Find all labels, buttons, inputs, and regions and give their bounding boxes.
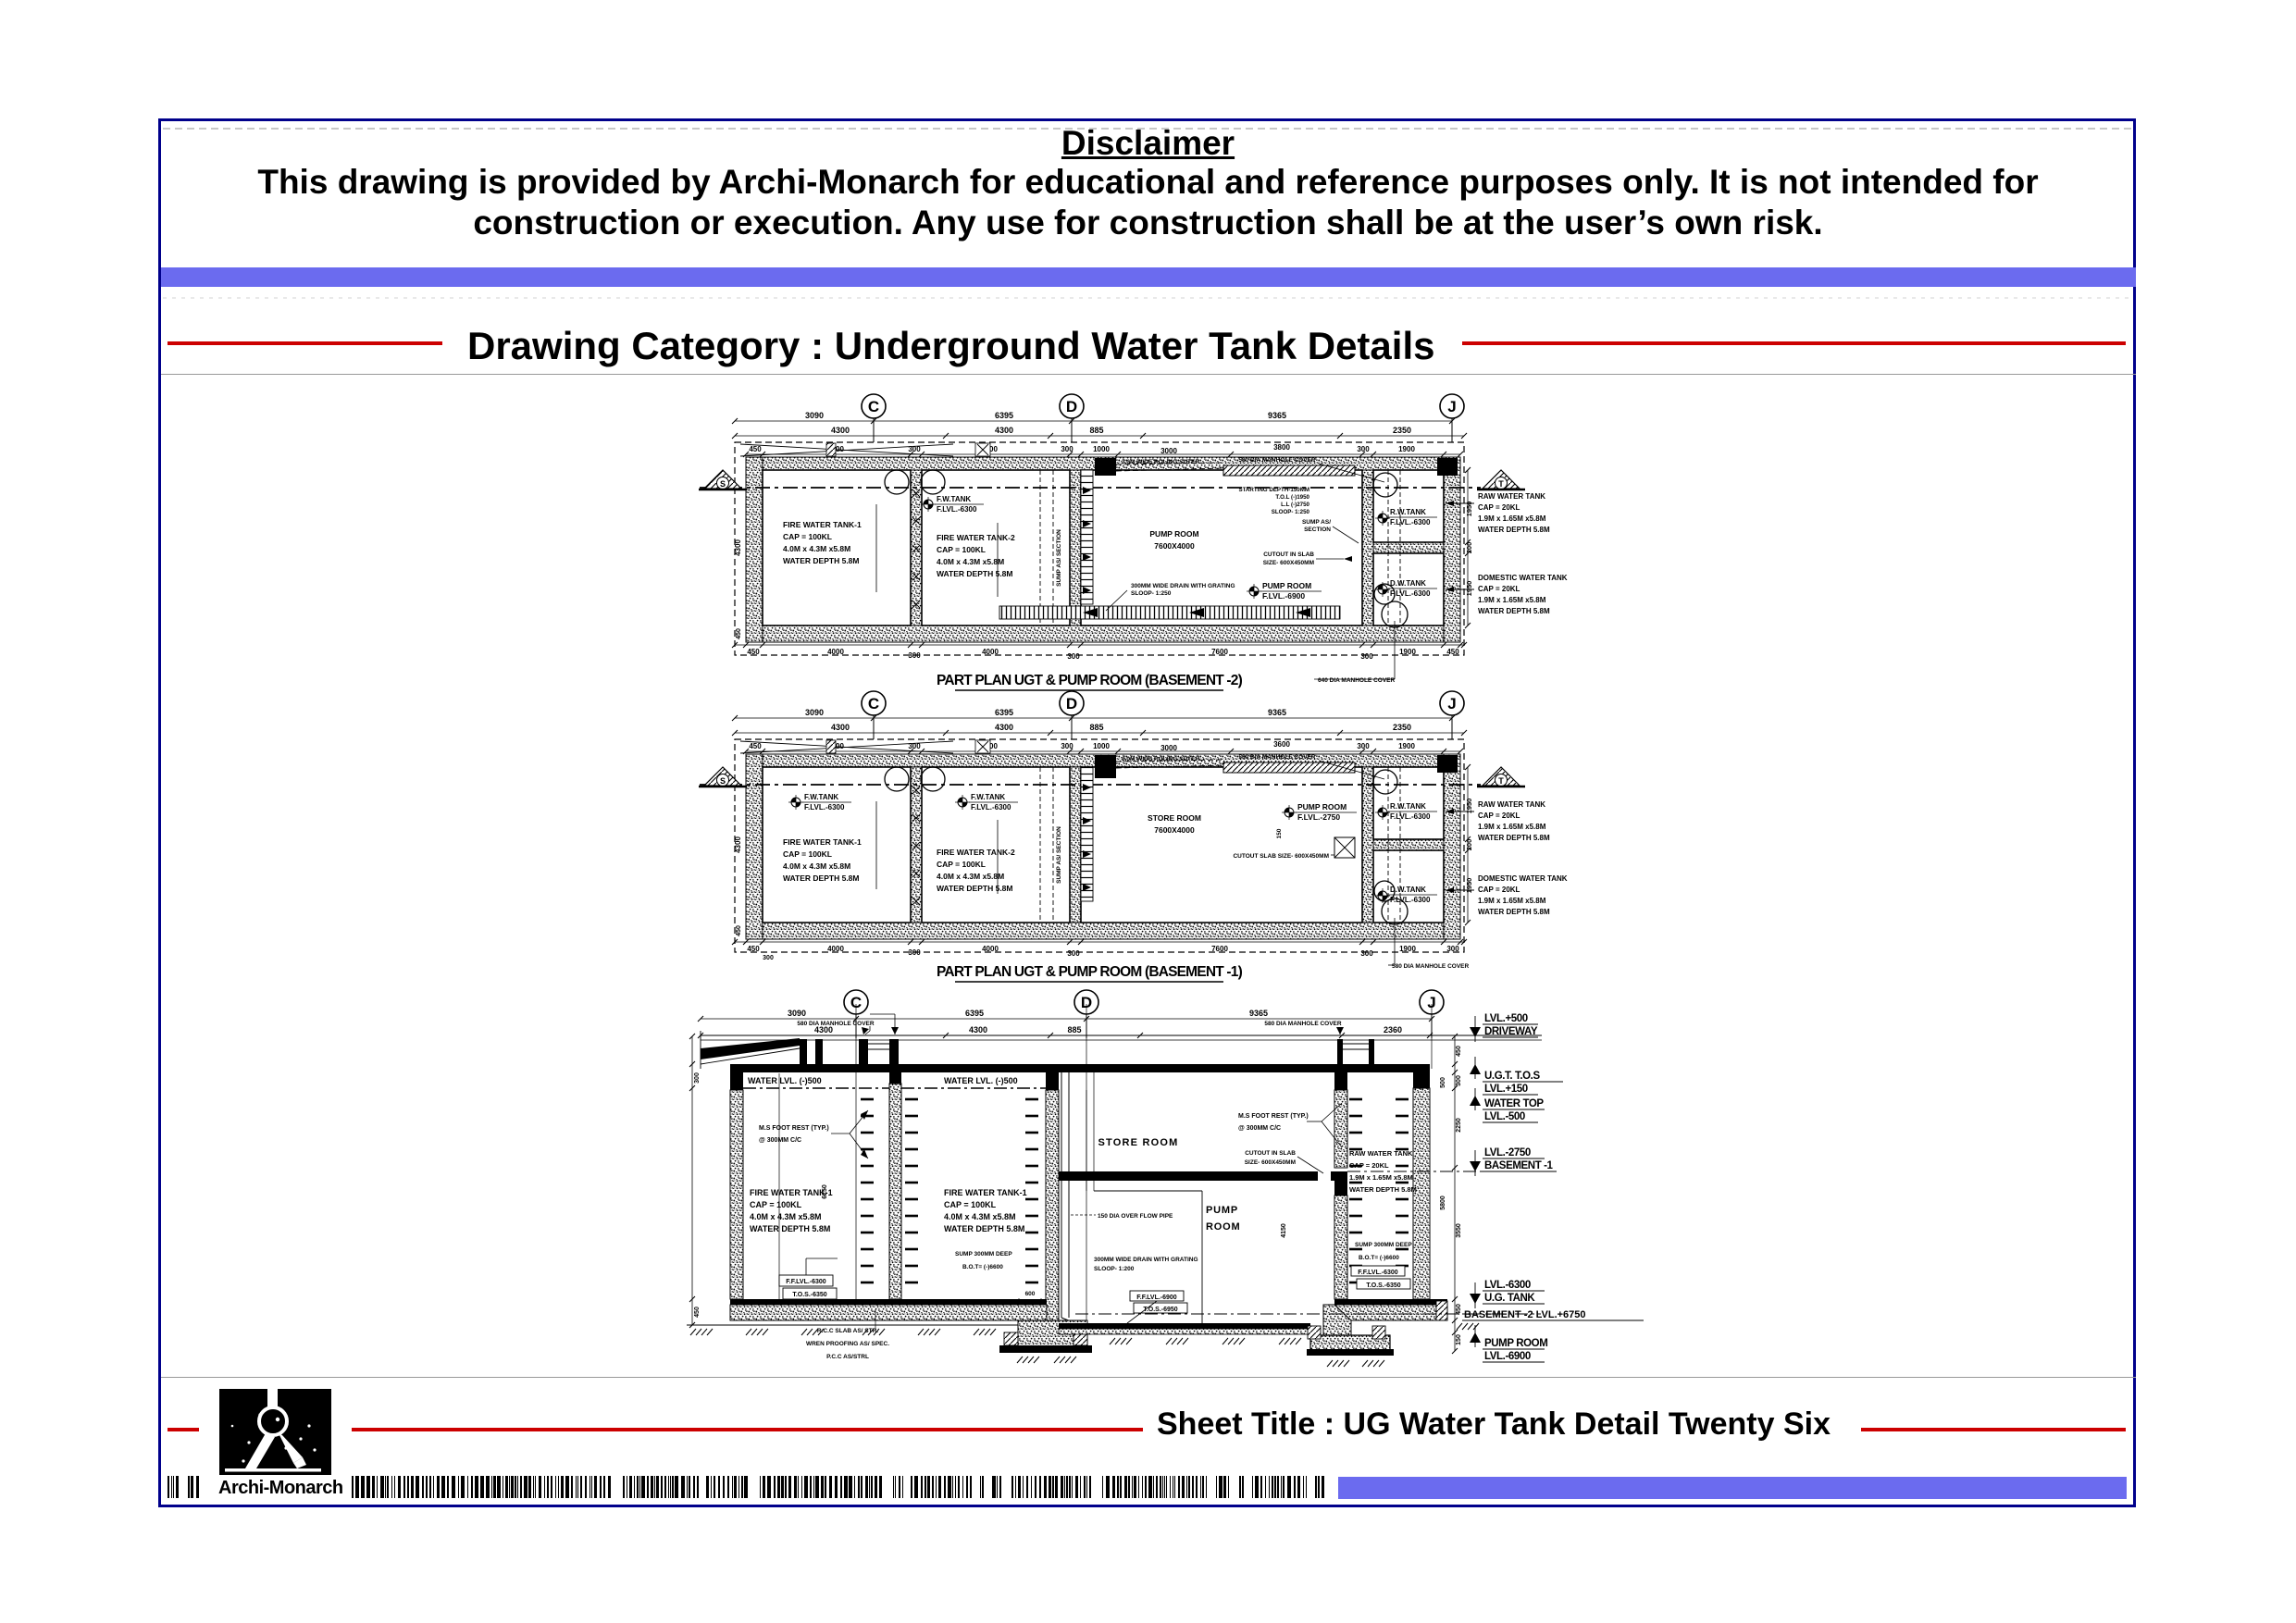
svg-text:T: T bbox=[1498, 479, 1504, 489]
svg-text:T.O.L (-)1950: T.O.L (-)1950 bbox=[1275, 494, 1309, 501]
svg-text:@ 300MM C/C: @ 300MM C/C bbox=[759, 1137, 801, 1144]
svg-text:L.L (-)2750: L.L (-)2750 bbox=[1281, 502, 1309, 508]
svg-text:D.W.TANK: D.W.TANK bbox=[1390, 579, 1426, 588]
svg-text:6395: 6395 bbox=[995, 708, 1013, 717]
svg-text:1.9M x 1.65M x5.8M: 1.9M x 1.65M x5.8M bbox=[1478, 514, 1546, 523]
svg-text:1950: 1950 bbox=[1465, 581, 1473, 597]
svg-text:1900: 1900 bbox=[1399, 945, 1416, 953]
svg-text:450: 450 bbox=[749, 445, 762, 453]
svg-text:CAP = 100KL: CAP = 100KL bbox=[937, 545, 986, 554]
svg-text:D: D bbox=[1066, 695, 1077, 712]
svg-text:1000: 1000 bbox=[1093, 742, 1110, 750]
svg-text:885: 885 bbox=[1067, 1025, 1081, 1035]
svg-text:4300: 4300 bbox=[734, 539, 742, 556]
svg-text:1.9M x 1.65M x5.8M: 1.9M x 1.65M x5.8M bbox=[1478, 596, 1546, 604]
svg-text:WATER DEPTH 5.8M: WATER DEPTH 5.8M bbox=[1478, 526, 1550, 534]
svg-text:F.LVL.-6300: F.LVL.-6300 bbox=[1390, 896, 1431, 904]
svg-text:600: 600 bbox=[1025, 1291, 1036, 1297]
svg-text:7600: 7600 bbox=[1211, 945, 1228, 953]
svg-text:4300: 4300 bbox=[831, 426, 850, 435]
svg-text:4300: 4300 bbox=[995, 426, 1013, 435]
svg-text:FIRE WATER TANK-2: FIRE WATER TANK-2 bbox=[937, 848, 1015, 857]
svg-text:PART PLAN UGT & PUMP ROOM (BA: PART PLAN UGT & PUMP ROOM (BASEMENT -2) bbox=[937, 673, 1243, 688]
svg-text:F.LVL.-6900: F.LVL.-6900 bbox=[1262, 591, 1305, 601]
svg-text:PART PLAN UGT & PUMP ROOM (BA: PART PLAN UGT & PUMP ROOM (BASEMENT -1) bbox=[937, 964, 1243, 980]
svg-text:450: 450 bbox=[1446, 648, 1459, 656]
svg-text:SUMP AS/ SECTION: SUMP AS/ SECTION bbox=[1056, 529, 1062, 587]
svg-text:SUMP AS/ SECTION: SUMP AS/ SECTION bbox=[1056, 826, 1062, 884]
svg-text:R.W.TANK: R.W.TANK bbox=[1390, 802, 1426, 811]
svg-text:4.0M x 4.3M x5.8M: 4.0M x 4.3M x5.8M bbox=[783, 544, 850, 553]
svg-text:580 DIA MANHOLE COVER: 580 DIA MANHOLE COVER bbox=[797, 1021, 874, 1027]
svg-text:450: 450 bbox=[1456, 1046, 1462, 1057]
svg-text:300: 300 bbox=[1360, 949, 1373, 958]
svg-text:U.G.T. T.O.S: U.G.T. T.O.S bbox=[1484, 1071, 1540, 1082]
svg-text:3.0M WIDE ROLING SUTER: 3.0M WIDE ROLING SUTER bbox=[1122, 459, 1199, 465]
svg-text:300: 300 bbox=[1067, 652, 1080, 661]
svg-text:300: 300 bbox=[1061, 742, 1074, 750]
svg-text:200: 200 bbox=[1465, 542, 1473, 554]
svg-text:4000: 4000 bbox=[827, 945, 844, 953]
svg-text:SLOOP- 1:250: SLOOP- 1:250 bbox=[1131, 590, 1172, 597]
svg-text:T: T bbox=[1498, 776, 1504, 786]
svg-text:F.F.LVL.-6300: F.F.LVL.-6300 bbox=[786, 1279, 826, 1285]
svg-text:300MM WIDE DRAIN WITH GRATING: 300MM WIDE DRAIN WITH GRATING bbox=[1131, 583, 1235, 589]
svg-text:PUMP ROOM: PUMP ROOM bbox=[1484, 1338, 1547, 1349]
svg-text:F.W.TANK: F.W.TANK bbox=[971, 793, 1005, 801]
svg-text:B.O.T= (-)6600: B.O.T= (-)6600 bbox=[962, 1264, 1003, 1270]
svg-text:580 DIA MANHOLE COVER: 580 DIA MANHOLE COVER bbox=[1238, 457, 1315, 464]
svg-text:WATER LVL. (-)500: WATER LVL. (-)500 bbox=[944, 1076, 1018, 1085]
svg-text:300: 300 bbox=[1357, 742, 1370, 750]
svg-text:WATER DEPTH 5.8M: WATER DEPTH 5.8M bbox=[944, 1224, 1024, 1233]
svg-text:SLOOP- 1:250: SLOOP- 1:250 bbox=[1272, 509, 1310, 515]
svg-text:F.LVL.-6300: F.LVL.-6300 bbox=[1390, 589, 1431, 598]
svg-text:F.W.TANK: F.W.TANK bbox=[804, 793, 838, 801]
svg-text:FIRE WATER TANK-1: FIRE WATER TANK-1 bbox=[783, 520, 862, 529]
svg-text:200: 200 bbox=[1465, 839, 1473, 851]
svg-text:U.G. TANK: U.G. TANK bbox=[1484, 1293, 1535, 1304]
svg-text:RAW WATER TANK: RAW WATER TANK bbox=[1349, 1149, 1413, 1158]
svg-text:1950: 1950 bbox=[1465, 799, 1473, 814]
svg-text:SUMP 300MM DEEP: SUMP 300MM DEEP bbox=[955, 1251, 1012, 1258]
svg-text:WATER DEPTH 5.8M: WATER DEPTH 5.8M bbox=[1349, 1185, 1417, 1194]
svg-text:885: 885 bbox=[1089, 426, 1103, 435]
svg-text:F.LVL.-6300: F.LVL.-6300 bbox=[937, 505, 977, 514]
svg-text:300: 300 bbox=[1456, 1075, 1462, 1086]
svg-text:3090: 3090 bbox=[788, 1009, 806, 1018]
svg-text:STORE ROOM: STORE ROOM bbox=[1148, 813, 1201, 823]
svg-text:CAP = 20KL: CAP = 20KL bbox=[1478, 811, 1520, 820]
svg-text:SIZE- 600X450MM: SIZE- 600X450MM bbox=[1245, 1159, 1296, 1166]
svg-text:CAP = 20KL: CAP = 20KL bbox=[1478, 503, 1520, 512]
svg-text:450: 450 bbox=[1456, 1304, 1462, 1315]
svg-text:WREN PROOFING AS/ SPEC.: WREN PROOFING AS/ SPEC. bbox=[806, 1341, 889, 1347]
svg-text:3090: 3090 bbox=[805, 708, 824, 717]
svg-text:450: 450 bbox=[747, 945, 760, 953]
svg-text:SECTION: SECTION bbox=[1304, 527, 1331, 533]
svg-text:SUMP AS/: SUMP AS/ bbox=[1302, 519, 1331, 526]
svg-text:CUTOUT IN SLAB: CUTOUT IN SLAB bbox=[1245, 1150, 1296, 1157]
svg-text:7600: 7600 bbox=[1211, 648, 1228, 656]
svg-text:4300: 4300 bbox=[969, 1025, 987, 1035]
svg-text:CAP = 100KL: CAP = 100KL bbox=[750, 1200, 802, 1209]
svg-text:300: 300 bbox=[694, 1072, 701, 1084]
svg-text:2350: 2350 bbox=[1393, 723, 1411, 732]
svg-text:4000: 4000 bbox=[982, 648, 999, 656]
svg-text:450: 450 bbox=[749, 742, 762, 750]
svg-text:9365: 9365 bbox=[1249, 1009, 1268, 1018]
svg-text:LVL.+150: LVL.+150 bbox=[1484, 1084, 1528, 1095]
svg-text:1950: 1950 bbox=[1465, 502, 1473, 517]
svg-text:FIRE WATER TANK-2: FIRE WATER TANK-2 bbox=[937, 533, 1015, 542]
svg-text:1900: 1900 bbox=[1399, 648, 1416, 656]
svg-text:CAP = 20KL: CAP = 20KL bbox=[1478, 585, 1520, 593]
svg-text:3800: 3800 bbox=[1273, 443, 1290, 452]
svg-text:F.F.LVL.-6300: F.F.LVL.-6300 bbox=[1358, 1270, 1398, 1276]
svg-text:F.W.TANK: F.W.TANK bbox=[937, 495, 971, 503]
svg-text:6395: 6395 bbox=[965, 1009, 984, 1018]
svg-text:4300: 4300 bbox=[831, 723, 850, 732]
svg-text:D: D bbox=[1066, 398, 1077, 415]
svg-text:300: 300 bbox=[1446, 945, 1459, 953]
svg-text:4.0M x 4.3M x5.8M: 4.0M x 4.3M x5.8M bbox=[937, 872, 1004, 881]
svg-text:300: 300 bbox=[1067, 949, 1080, 958]
svg-text:S: S bbox=[720, 479, 726, 489]
svg-text:C: C bbox=[868, 398, 879, 415]
svg-text:CAP = 100KL: CAP = 100KL bbox=[937, 860, 986, 869]
svg-text:300: 300 bbox=[908, 651, 921, 660]
svg-text:1950: 1950 bbox=[1465, 878, 1473, 894]
svg-text:150: 150 bbox=[1456, 1334, 1462, 1345]
svg-text:DRIVEWAY: DRIVEWAY bbox=[1484, 1026, 1538, 1037]
svg-text:J: J bbox=[1447, 398, 1456, 415]
svg-text:LVL.-6300: LVL.-6300 bbox=[1484, 1280, 1531, 1291]
svg-text:7600X4000: 7600X4000 bbox=[1154, 825, 1195, 835]
svg-text:3.0M WIDE ROLING SUTER: 3.0M WIDE ROLING SUTER bbox=[1122, 756, 1199, 762]
svg-text:DOMESTIC WATER TANK: DOMESTIC WATER TANK bbox=[1478, 574, 1568, 582]
svg-text:CAP = 100KL: CAP = 100KL bbox=[783, 532, 832, 541]
svg-text:F.LVL.-6300: F.LVL.-6300 bbox=[1390, 518, 1431, 527]
svg-text:WATER TOP: WATER TOP bbox=[1484, 1098, 1544, 1109]
svg-text:2350: 2350 bbox=[1393, 426, 1411, 435]
svg-text:STARTING DEPTH-150MM: STARTING DEPTH-150MM bbox=[1238, 487, 1309, 493]
svg-text:WATER DEPTH 5.8M: WATER DEPTH 5.8M bbox=[783, 873, 860, 883]
svg-text:T.O.S.-6350: T.O.S.-6350 bbox=[792, 1292, 826, 1298]
svg-text:CAP = 100KL: CAP = 100KL bbox=[944, 1200, 997, 1209]
svg-text:4000: 4000 bbox=[827, 648, 844, 656]
svg-text:450: 450 bbox=[694, 1307, 701, 1318]
svg-text:4.0M x 4.3M x5.8M: 4.0M x 4.3M x5.8M bbox=[783, 861, 850, 871]
svg-text:4300: 4300 bbox=[734, 836, 742, 853]
svg-text:WATER DEPTH 5.8M: WATER DEPTH 5.8M bbox=[1478, 607, 1550, 615]
svg-text:FIRE WATER TANK-1: FIRE WATER TANK-1 bbox=[783, 837, 862, 847]
svg-text:PUMP ROOM: PUMP ROOM bbox=[1297, 802, 1347, 811]
svg-text:CUTOUT SLAB SIZE- 600X450MM: CUTOUT SLAB SIZE- 600X450MM bbox=[1233, 853, 1329, 860]
svg-text:885: 885 bbox=[1089, 723, 1103, 732]
svg-text:SUMP 300MM DEEP: SUMP 300MM DEEP bbox=[1355, 1242, 1412, 1248]
svg-text:1.9M x 1.65M x5.8M: 1.9M x 1.65M x5.8M bbox=[1478, 897, 1546, 905]
svg-text:F.LVL.-2750: F.LVL.-2750 bbox=[1297, 812, 1340, 822]
svg-text:9365: 9365 bbox=[1268, 411, 1286, 420]
svg-text:300: 300 bbox=[763, 955, 774, 961]
svg-text:1.9M x 1.65M x5.8M: 1.9M x 1.65M x5.8M bbox=[1478, 823, 1546, 831]
svg-text:580 DIA MANHOLE COVER: 580 DIA MANHOLE COVER bbox=[1264, 1021, 1341, 1027]
svg-text:9365: 9365 bbox=[1268, 708, 1286, 717]
svg-text:1900: 1900 bbox=[1398, 445, 1415, 453]
svg-text:LVL.+500: LVL.+500 bbox=[1484, 1013, 1528, 1024]
svg-text:150 DIA OVER FLOW PIPE: 150 DIA OVER FLOW PIPE bbox=[1098, 1213, 1173, 1220]
svg-text:CAP = 20KL: CAP = 20KL bbox=[1349, 1161, 1389, 1170]
svg-text:WATER LVL. (-)500: WATER LVL. (-)500 bbox=[748, 1076, 822, 1085]
svg-text:3550: 3550 bbox=[1456, 1223, 1462, 1238]
svg-text:J: J bbox=[1447, 695, 1456, 712]
svg-text:1900: 1900 bbox=[1398, 742, 1415, 750]
svg-text:PUMP: PUMP bbox=[1206, 1205, 1238, 1216]
svg-text:500: 500 bbox=[1440, 1077, 1446, 1088]
svg-text:4.0M x 4.3M x5.8M: 4.0M x 4.3M x5.8M bbox=[944, 1212, 1016, 1221]
svg-text:2250: 2250 bbox=[1456, 1118, 1462, 1133]
svg-text:WATER DEPTH 5.8M: WATER DEPTH 5.8M bbox=[937, 569, 1013, 578]
svg-text:F.LVL.-6300: F.LVL.-6300 bbox=[804, 803, 845, 811]
svg-text:5800: 5800 bbox=[1440, 1196, 1446, 1210]
svg-text:CAP = 100KL: CAP = 100KL bbox=[783, 849, 832, 859]
svg-text:2360: 2360 bbox=[1384, 1025, 1402, 1035]
svg-text:WATER DEPTH 5.8M: WATER DEPTH 5.8M bbox=[1478, 834, 1550, 842]
svg-text:7600X4000: 7600X4000 bbox=[1154, 541, 1195, 551]
svg-text:@ 300MM C/C: @ 300MM C/C bbox=[1238, 1125, 1281, 1132]
svg-text:M.S FOOT REST (TYP.): M.S FOOT REST (TYP.) bbox=[1238, 1113, 1309, 1120]
svg-text:1000: 1000 bbox=[1093, 445, 1110, 453]
svg-text:300: 300 bbox=[1357, 445, 1370, 453]
svg-text:PUMP ROOM: PUMP ROOM bbox=[1262, 581, 1311, 590]
svg-text:3600: 3600 bbox=[1273, 740, 1290, 749]
svg-text:WATER DEPTH 5.8M: WATER DEPTH 5.8M bbox=[783, 556, 860, 565]
svg-text:F.LVL.-6300: F.LVL.-6300 bbox=[971, 803, 1011, 811]
svg-text:PUMP ROOM: PUMP ROOM bbox=[1149, 529, 1198, 539]
svg-text:4.0M x 4.3M x5.8M: 4.0M x 4.3M x5.8M bbox=[937, 557, 1004, 566]
svg-text:1.9M x 1.65M x5.8M: 1.9M x 1.65M x5.8M bbox=[1349, 1173, 1413, 1182]
svg-text:580 DIA MANHOLE COVER: 580 DIA MANHOLE COVER bbox=[1392, 963, 1469, 970]
svg-text:WATER DEPTH 5.8M: WATER DEPTH 5.8M bbox=[750, 1224, 830, 1233]
svg-text:S: S bbox=[720, 776, 726, 786]
svg-text:640 DIA MANHOLE COVER: 640 DIA MANHOLE COVER bbox=[1318, 677, 1395, 684]
svg-text:4.0M x 4.3M x5.8M: 4.0M x 4.3M x5.8M bbox=[750, 1212, 822, 1221]
svg-text:3000: 3000 bbox=[1160, 744, 1177, 752]
svg-text:300: 300 bbox=[1061, 445, 1074, 453]
svg-text:CAP = 20KL: CAP = 20KL bbox=[1478, 886, 1520, 894]
svg-text:RAW WATER TANK: RAW WATER TANK bbox=[1478, 800, 1545, 809]
svg-text:CUTOUT IN SLAB: CUTOUT IN SLAB bbox=[1263, 551, 1314, 558]
svg-text:4300: 4300 bbox=[995, 723, 1013, 732]
svg-text:BASEMENT -2 LVL.+6750: BASEMENT -2 LVL.+6750 bbox=[1464, 1309, 1586, 1320]
svg-text:LVL.-500: LVL.-500 bbox=[1484, 1111, 1525, 1122]
svg-text:LVL.-6900: LVL.-6900 bbox=[1484, 1351, 1531, 1362]
svg-text:M.S FOOT REST (TYP.): M.S FOOT REST (TYP.) bbox=[759, 1125, 829, 1132]
svg-text:C: C bbox=[868, 695, 879, 712]
svg-text:3000: 3000 bbox=[1160, 447, 1177, 455]
svg-text:WATER DEPTH 5.8M: WATER DEPTH 5.8M bbox=[1478, 908, 1550, 916]
svg-text:BASEMENT -1: BASEMENT -1 bbox=[1484, 1160, 1554, 1171]
svg-text:150: 150 bbox=[1276, 828, 1283, 838]
svg-text:D.W.TANK: D.W.TANK bbox=[1390, 886, 1426, 894]
svg-text:580 DIA MANHOLE COVER: 580 DIA MANHOLE COVER bbox=[1238, 754, 1315, 761]
svg-text:6250: 6250 bbox=[822, 1184, 828, 1199]
svg-text:R.C.C SLAB AS/ STR.: R.C.C SLAB AS/ STR. bbox=[817, 1328, 878, 1334]
svg-text:6395: 6395 bbox=[995, 411, 1013, 420]
svg-text:DOMESTIC WATER TANK: DOMESTIC WATER TANK bbox=[1478, 874, 1568, 883]
svg-text:3090: 3090 bbox=[805, 411, 824, 420]
svg-text:LVL.-2750: LVL.-2750 bbox=[1484, 1147, 1531, 1158]
svg-text:FIRE WATER TANK-1: FIRE WATER TANK-1 bbox=[750, 1188, 833, 1197]
svg-text:4150: 4150 bbox=[1281, 1223, 1287, 1238]
svg-text:STORE ROOM: STORE ROOM bbox=[1098, 1137, 1179, 1148]
svg-text:SLOOP- 1:200: SLOOP- 1:200 bbox=[1094, 1266, 1135, 1272]
svg-text:F.F.LVL.-6900: F.F.LVL.-6900 bbox=[1136, 1295, 1177, 1301]
svg-text:WATER DEPTH 5.8M: WATER DEPTH 5.8M bbox=[937, 884, 1013, 893]
svg-text:RAW WATER TANK: RAW WATER TANK bbox=[1478, 492, 1545, 501]
svg-text:B.O.T= (-)6600: B.O.T= (-)6600 bbox=[1359, 1255, 1399, 1261]
svg-text:300: 300 bbox=[908, 948, 921, 957]
svg-text:P.C.C AS/STRL: P.C.C AS/STRL bbox=[826, 1354, 869, 1360]
svg-text:R.W.TANK: R.W.TANK bbox=[1390, 508, 1426, 516]
svg-text:FIRE WATER TANK-1: FIRE WATER TANK-1 bbox=[944, 1188, 1027, 1197]
svg-text:T.O.S.-6350: T.O.S.-6350 bbox=[1366, 1282, 1400, 1289]
svg-text:ROOM: ROOM bbox=[1206, 1221, 1240, 1233]
svg-text:450: 450 bbox=[736, 628, 742, 639]
svg-text:300MM WIDE DRAIN WITH GRATING: 300MM WIDE DRAIN WITH GRATING bbox=[1094, 1257, 1198, 1263]
svg-text:450: 450 bbox=[747, 648, 760, 656]
svg-text:F.LVL.-6300: F.LVL.-6300 bbox=[1390, 812, 1431, 821]
svg-text:SIZE- 600X450MM: SIZE- 600X450MM bbox=[1263, 560, 1314, 566]
svg-text:300: 300 bbox=[1360, 652, 1373, 661]
svg-text:450: 450 bbox=[736, 925, 742, 936]
svg-text:4000: 4000 bbox=[982, 945, 999, 953]
